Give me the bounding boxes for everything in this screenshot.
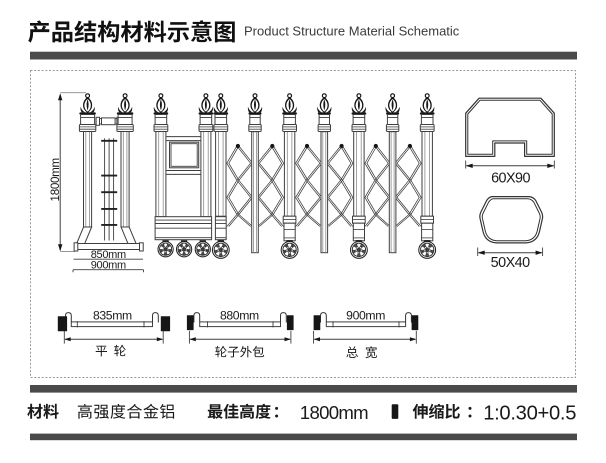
svg-text:50X40: 50X40: [491, 255, 530, 271]
svg-text:1:0.30+0.5: 1:0.30+0.5: [483, 402, 576, 424]
svg-text:1800mm: 1800mm: [49, 158, 62, 201]
svg-text:Product Structure Material Sch: Product Structure Material Schematic: [244, 24, 460, 39]
svg-text:900mm: 900mm: [346, 308, 385, 322]
svg-text:900mm: 900mm: [91, 260, 126, 272]
svg-text:880mm: 880mm: [220, 308, 259, 322]
svg-text:835mm: 835mm: [93, 308, 132, 322]
svg-text:1800mm: 1800mm: [300, 402, 368, 423]
svg-text:60X90: 60X90: [491, 170, 530, 186]
